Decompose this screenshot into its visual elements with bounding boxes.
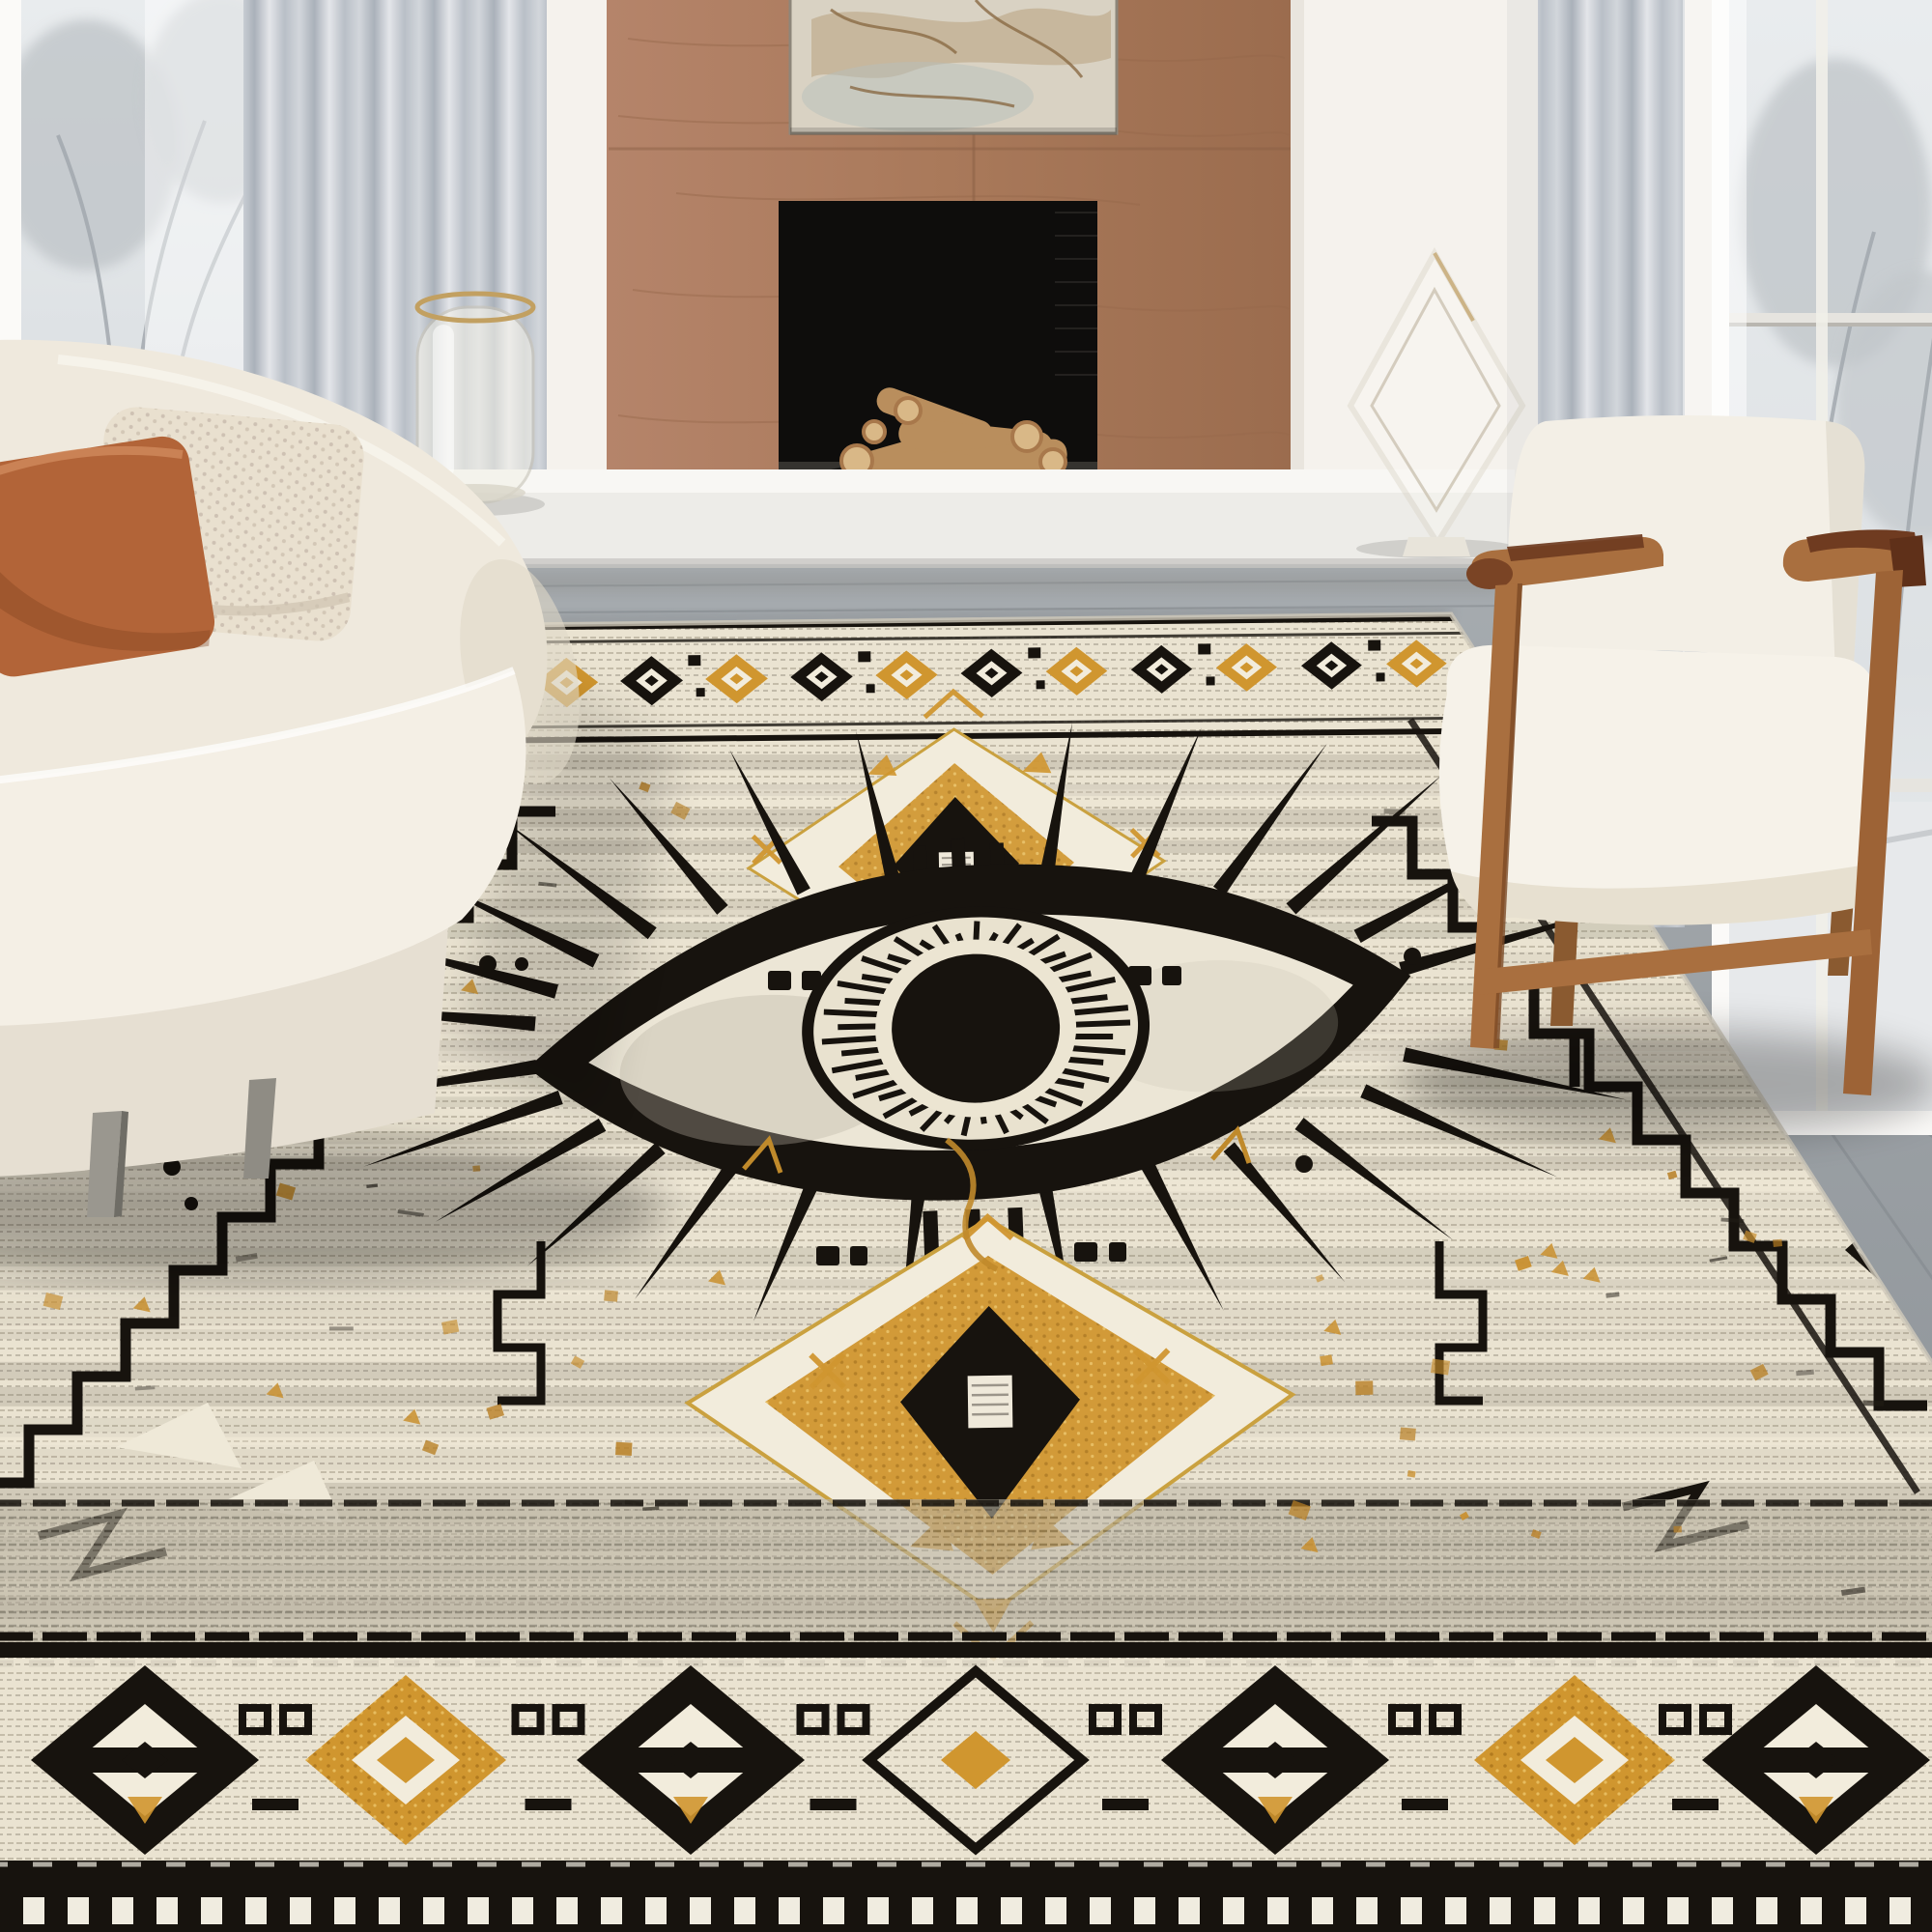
fireplace xyxy=(607,0,1291,506)
sofa-pillow-terracotta xyxy=(0,433,218,680)
living-room-photo xyxy=(0,0,1932,1932)
photo-canvas xyxy=(0,0,1932,1932)
rug-bottom-border xyxy=(0,1642,1932,1932)
abstract-artwork xyxy=(790,0,1117,135)
firebox xyxy=(779,201,1097,491)
hearth-bench xyxy=(404,469,1515,593)
rug-dark-band xyxy=(0,1499,1932,1642)
